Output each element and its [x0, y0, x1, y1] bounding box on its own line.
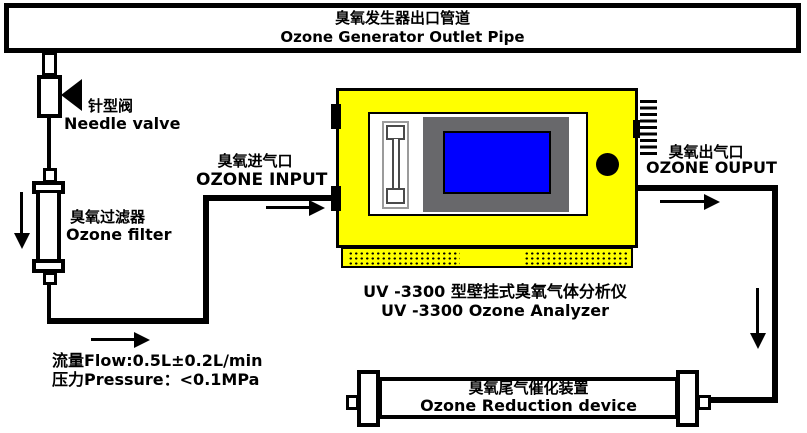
- reduction-device-label-zh: 臭氧尾气催化装置: [468, 380, 588, 397]
- lcd-screen: [443, 131, 551, 194]
- vent-grid-right: [524, 251, 630, 265]
- down-arrow-icon-output: [756, 288, 759, 334]
- analyzer-mount-tab-top: [331, 104, 341, 129]
- flowmeter-top-fitting: [386, 125, 405, 140]
- reduction-device-left-cap: [357, 370, 380, 427]
- right-arrow-icon-bottom: [91, 338, 135, 341]
- ozone-filter-body: [36, 193, 61, 261]
- needle-valve-label-en: Needle valve: [64, 115, 180, 133]
- right-arrow-icon-output: [660, 200, 705, 203]
- pipe-output-horizontal: [636, 185, 776, 191]
- pipe-valve-to-filter: [47, 116, 51, 170]
- reduction-device-label-en: Ozone Reduction device: [420, 397, 637, 415]
- analyzer-input-port: [331, 186, 341, 211]
- pipe-to-reduction-device: [710, 397, 778, 403]
- flowmeter-tube: [392, 139, 400, 190]
- needle-valve-cone-icon: [61, 79, 82, 111]
- pipe-bottom-horizontal: [47, 318, 209, 324]
- needle-valve-stem: [42, 52, 57, 76]
- pipe-riser-vertical: [203, 195, 209, 324]
- reduction-device-right-cap: [676, 370, 699, 427]
- power-button[interactable]: [596, 153, 619, 176]
- ozone-filter-bottom-stem: [43, 272, 57, 285]
- flow-spec-text: 流量Flow:0.5L±0.2L/min: [52, 352, 262, 370]
- needle-valve-label-zh: 针型阀: [88, 98, 133, 115]
- outlet-pipe-box: 臭氧发生器出口管道 Ozone Generator Outlet Pipe: [4, 3, 801, 53]
- ozone-input-label-en: OZONE INPUT: [196, 171, 314, 190]
- ozone-output-label-en: OZONE OUPUT: [646, 159, 766, 177]
- ozone-filter-label-zh: 臭氧过滤器: [70, 209, 145, 226]
- vent-grid-left: [348, 251, 460, 265]
- pipe-output-vertical: [772, 185, 778, 403]
- pressure-spec-text: 压力Pressure：<0.1MPa: [52, 371, 259, 389]
- outlet-pipe-title-en: Ozone Generator Outlet Pipe: [280, 28, 524, 47]
- down-arrow-icon-filter: [20, 192, 23, 234]
- flowmeter-bottom-fitting: [386, 188, 405, 204]
- ozone-filter-bottom-cap: [32, 259, 65, 273]
- needle-valve-body: [37, 75, 62, 118]
- analyzer-vent-strip: [341, 247, 633, 268]
- analyzer-caption-zh: UV -3300 型壁挂式臭氧气体分析仪: [325, 283, 665, 301]
- reduction-device-body: 臭氧尾气催化装置 Ozone Reduction device: [378, 377, 679, 419]
- ozone-filter-label-en: Ozone filter: [66, 226, 171, 244]
- reduction-device-right-stub: [697, 395, 711, 410]
- analyzer-output-port: [633, 120, 640, 138]
- right-arrow-icon-input: [266, 206, 310, 209]
- ozone-input-label-zh: 臭氧进气口: [196, 153, 314, 170]
- diagram-canvas: 臭氧发生器出口管道 Ozone Generator Outlet Pipe 针型…: [0, 0, 807, 433]
- outlet-pipe-title-zh: 臭氧发生器出口管道: [335, 9, 470, 28]
- analyzer-caption-en: UV -3300 Ozone Analyzer: [325, 302, 665, 320]
